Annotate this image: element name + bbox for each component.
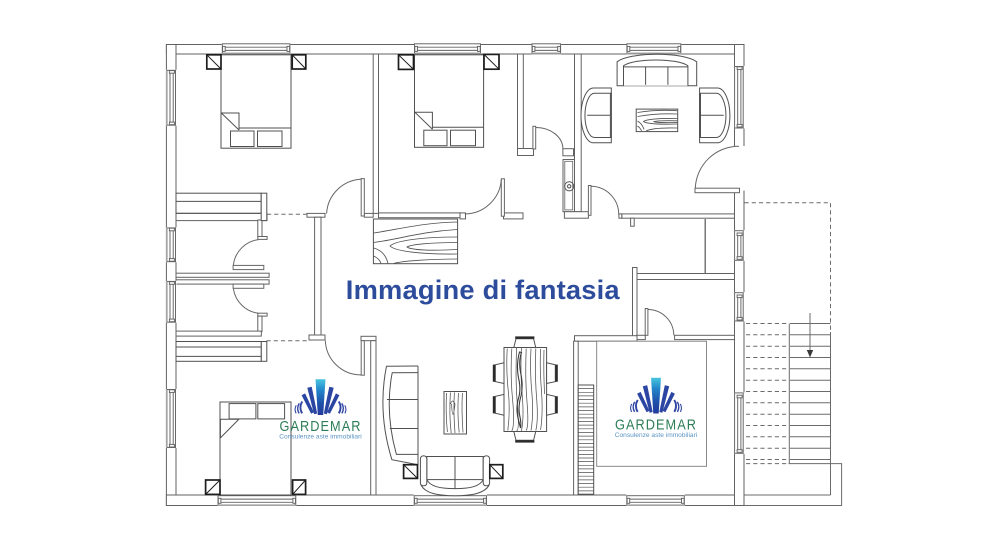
svg-text:Immagine di fantasia: Immagine di fantasia [346, 275, 621, 305]
